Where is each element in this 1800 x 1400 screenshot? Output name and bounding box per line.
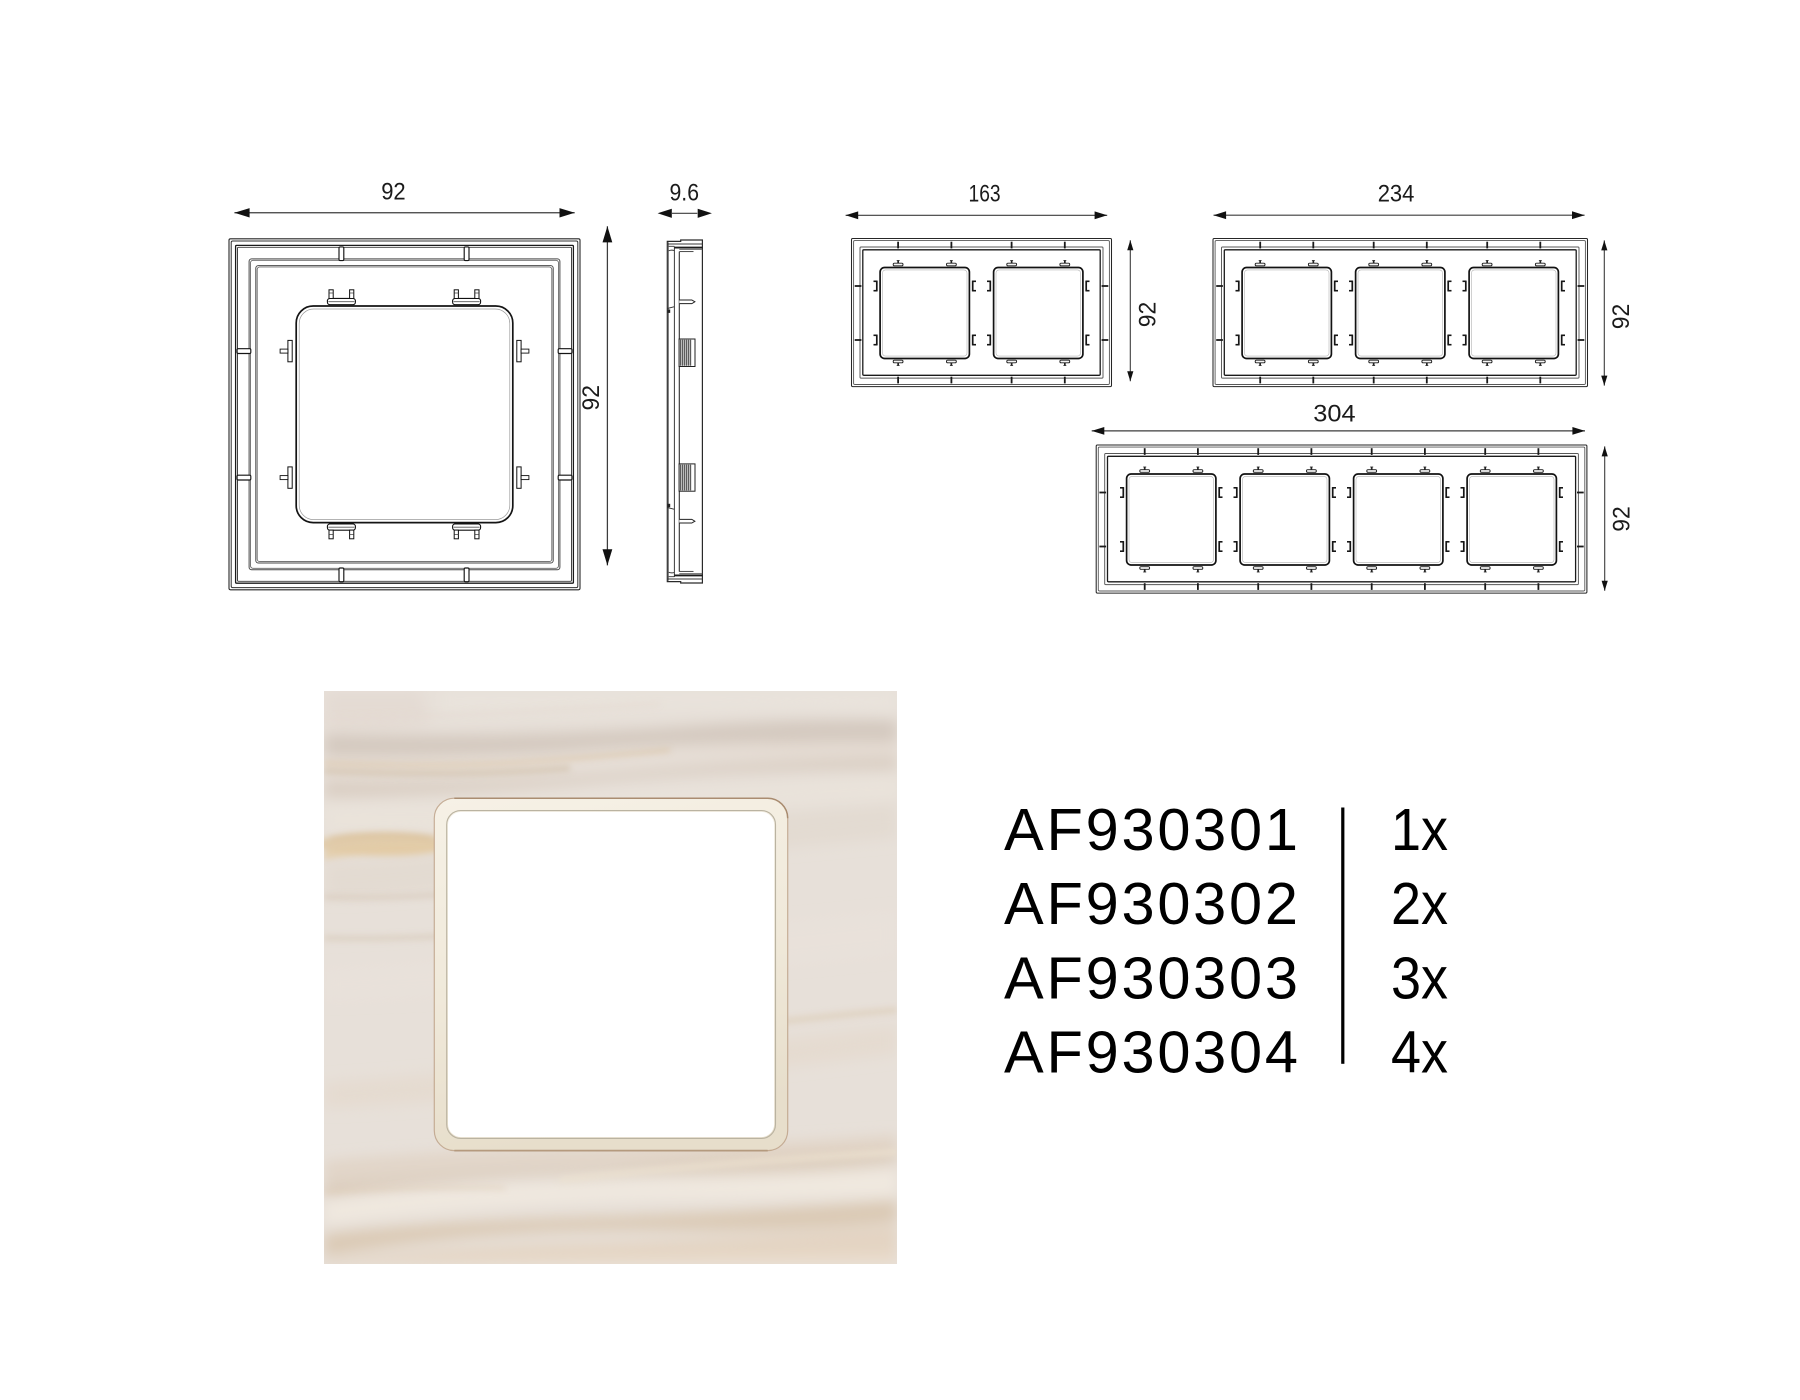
svg-text:1x: 1x	[1391, 796, 1448, 863]
svg-text:92: 92	[1135, 302, 1162, 328]
svg-text:AF930301: AF930301	[1004, 796, 1298, 863]
svg-text:92: 92	[578, 385, 605, 411]
svg-text:92: 92	[1608, 304, 1635, 330]
svg-text:234: 234	[1378, 180, 1415, 207]
svg-text:4x: 4x	[1391, 1019, 1448, 1086]
svg-text:2x: 2x	[1391, 870, 1448, 937]
svg-text:92: 92	[381, 179, 406, 206]
svg-text:163: 163	[969, 180, 1001, 207]
svg-text:9.6: 9.6	[670, 180, 700, 207]
svg-text:304: 304	[1313, 401, 1355, 428]
svg-text:92: 92	[1608, 506, 1635, 532]
svg-text:AF930304: AF930304	[1004, 1019, 1298, 1086]
svg-text:AF930303: AF930303	[1004, 944, 1298, 1011]
svg-text:3x: 3x	[1391, 944, 1448, 1011]
svg-text:AF930302: AF930302	[1004, 870, 1298, 937]
